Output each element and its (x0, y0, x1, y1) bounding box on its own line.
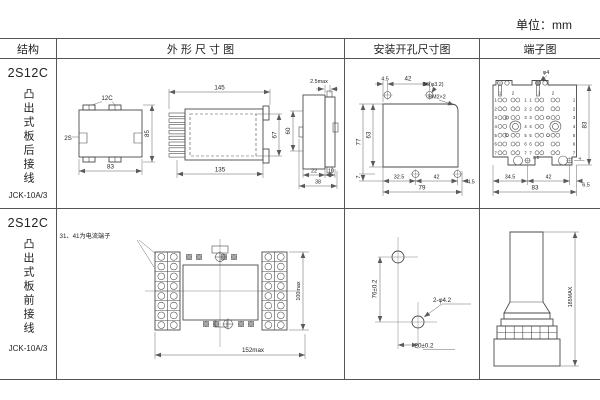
hole-geometry (375, 237, 437, 349)
header-terminal: 端子图 (480, 39, 600, 59)
panel-thickness-label: 2.5max (310, 79, 328, 85)
terminal-layout-drawing: 1 2 1 2 1 2 3 4 5 6 7 1 2 3 4 5 6 (480, 59, 600, 209)
install-cutout-rear: 4.5 42 B6(φ3.2) RM2×2 77 63 7 (345, 59, 480, 209)
hole-count-label: 2-φ4.2 (433, 297, 452, 304)
dim-b3-label: 6.5 (582, 183, 590, 189)
dim-d1-label: 22 (311, 169, 317, 175)
profile-dimensions: 185MAX (543, 232, 579, 366)
dim-v1-label: 77 (356, 138, 363, 145)
side-view-drawing: 145 135 (169, 85, 282, 179)
col-label: 2 (512, 91, 515, 96)
terminal-layout-rear: 1 2 1 2 1 2 3 4 5 6 7 1 2 3 4 5 6 (480, 59, 600, 209)
header-structure-label: 结构 (17, 41, 39, 57)
structure-front-wiring: 2S12C 凸出式板前接线 JCK-10A/3 (0, 209, 57, 379)
dim-b4-label: 83 (532, 185, 539, 192)
profile-geometry (494, 232, 560, 366)
outline-drawing-rear: 12C 2S 83 85 (57, 59, 345, 209)
dim-d2-label: 10 (328, 169, 334, 175)
dim-b4-label: 79 (419, 185, 426, 192)
row-label-right: 1 (573, 98, 576, 103)
structure-rear-wiring: 2S12C 凸出式板后接线 JCK-10A/3 (0, 59, 57, 209)
dim-v-label: 76±0.2 (372, 279, 379, 298)
mount-type-label: 凸出式板前接线 (20, 238, 36, 344)
terminal-dimensions: φ4 83 4 8.6 34.5 42 (493, 70, 592, 196)
dim-depth-case-label: 135 (215, 167, 226, 174)
install-holes-front: 76±0.2 20±0.2 2-φ4.2 (345, 209, 480, 379)
spec-sheet: 单位：mm 结构 外 形 尺 寸 图 安装开孔尺寸图 端子图 2S12C 凸出式… (0, 0, 600, 400)
panel-cutout-drawing-front: 76±0.2 20±0.2 2-φ4.2 (345, 209, 480, 379)
dim-b1-label: 32.5 (394, 175, 405, 181)
header-terminal-label: 端子图 (524, 41, 557, 57)
center-label: 1 (524, 98, 527, 103)
mount-type-label: 凸出式板后接线 (20, 88, 36, 191)
dim-plate-height-label: 83 (581, 121, 588, 128)
dim-width-label: 83 (107, 164, 114, 171)
cutout-geometry (383, 90, 463, 179)
code-label: JCK-10A/3 (9, 191, 48, 200)
header-structure: 结构 (0, 39, 57, 59)
row-label-left: 5 (495, 133, 498, 138)
center-label: 6 (524, 142, 527, 147)
center-label: 4 (529, 124, 532, 129)
center-label: 2 (524, 106, 527, 111)
row-label-right: 2 (573, 106, 576, 111)
dim-b1-label: 34.5 (505, 175, 516, 181)
row-label-left: 6 (495, 142, 498, 147)
row-label-right: 7 (573, 150, 576, 155)
cutout-dimensions: 4.5 42 B6(φ3.2) RM2×2 77 63 7 (356, 76, 475, 197)
outline-drawings-rear: 12C 2S 83 85 (57, 59, 345, 209)
center-label: 4 (524, 124, 527, 129)
row-label-left: 7 (495, 150, 498, 155)
dim-b2-label: 42 (434, 175, 440, 181)
row-label-right: 6 (573, 142, 576, 147)
header-install-label: 安装开孔尺寸图 (374, 41, 451, 57)
row-label-right: 3 (573, 115, 576, 120)
header-install: 安装开孔尺寸图 (345, 39, 480, 59)
corner-radius-label: RM2×2 (428, 95, 446, 101)
col-label: 1 (538, 91, 541, 96)
dim-height-label: 100max (296, 281, 302, 300)
front-view-drawing: 12C 2S 83 85 (64, 95, 155, 175)
dim-t2-label: 42 (405, 76, 412, 83)
current-terminal-note: 31、41为电流端子 (60, 232, 111, 240)
dim-b3-label: 4.5 (467, 180, 475, 186)
dim-h-label: 20±0.2 (415, 343, 434, 350)
dim-v3-label: 7 (356, 176, 362, 179)
hole-spec-label: B6(φ3.2) (422, 82, 443, 88)
terminal-side-front: 185MAX (480, 209, 600, 379)
profile-view-drawing: 2.5max 60 (285, 79, 338, 189)
wiring-annotation: 31、41为电流端子 (60, 232, 156, 267)
unit-label: 单位：mm (516, 16, 572, 33)
dim-t1-label: 4.5 (381, 77, 389, 83)
hole-dimensions: 76±0.2 20±0.2 2-φ4.2 (372, 257, 472, 350)
wiring-geometry (145, 239, 297, 347)
screw-dia-label: φ4 (543, 70, 550, 76)
wiring-dimensions: 152max 100max (155, 252, 309, 359)
panel-cutout-drawing-rear: 4.5 42 B6(φ3.2) RM2×2 77 63 7 (345, 59, 480, 209)
dim-gap-label: 8.6 (533, 155, 539, 160)
center-label: 7 (524, 150, 527, 155)
center-label: 6 (529, 142, 532, 147)
center-label: 5 (524, 133, 527, 138)
header-outline: 外 形 尺 寸 图 (57, 39, 345, 59)
dim-h1-label: 67 (272, 131, 279, 138)
row-label-left: 3 (495, 115, 498, 120)
dim-depth-total-label: 145 (214, 85, 225, 92)
terminal-plate-outline (493, 81, 577, 166)
spec-table: 结构 外 形 尺 寸 图 安装开孔尺寸图 端子图 2S12C 凸出式板后接线 J… (0, 38, 600, 380)
dim-h2-label: 60 (285, 127, 292, 134)
dim-height-label: 85 (144, 130, 151, 137)
col-label: 2 (552, 91, 555, 96)
dim-total-height-label: 185MAX (568, 286, 574, 307)
dim-b2-label: 42 (546, 175, 552, 181)
center-label: 5 (529, 133, 532, 138)
row-label-right: 5 (573, 133, 576, 138)
front-wiring-drawing: 31、41为电流端子 (57, 209, 345, 379)
row-label-right: 4 (573, 124, 576, 129)
code-label: JCK-10A/3 (9, 344, 48, 353)
header-outline-label: 外 形 尺 寸 图 (167, 41, 234, 57)
outline-drawings-front: 31、41为电流端子 (57, 209, 345, 379)
center-label: 2 (529, 106, 532, 111)
model-label: 2S12C (8, 66, 49, 80)
row-label-left: 2 (495, 106, 498, 111)
center-label: 3 (529, 115, 532, 120)
center-label: 3 (524, 115, 527, 120)
case-width-code-label: 12C (101, 95, 113, 102)
center-label: 7 (529, 150, 532, 155)
row-label-left: 4 (495, 124, 498, 129)
center-label: 1 (529, 98, 532, 103)
dim-edge-label: 4 (578, 157, 583, 160)
relay-side-profile-drawing: 185MAX (480, 209, 600, 379)
model-label: 2S12C (8, 216, 49, 230)
row-label-left: 1 (495, 98, 498, 103)
mount-code-label: 2S (64, 135, 72, 142)
dim-width-label: 152max (242, 347, 265, 354)
dim-v2-label: 63 (366, 131, 373, 138)
dim-d3-label: 38 (315, 180, 321, 186)
